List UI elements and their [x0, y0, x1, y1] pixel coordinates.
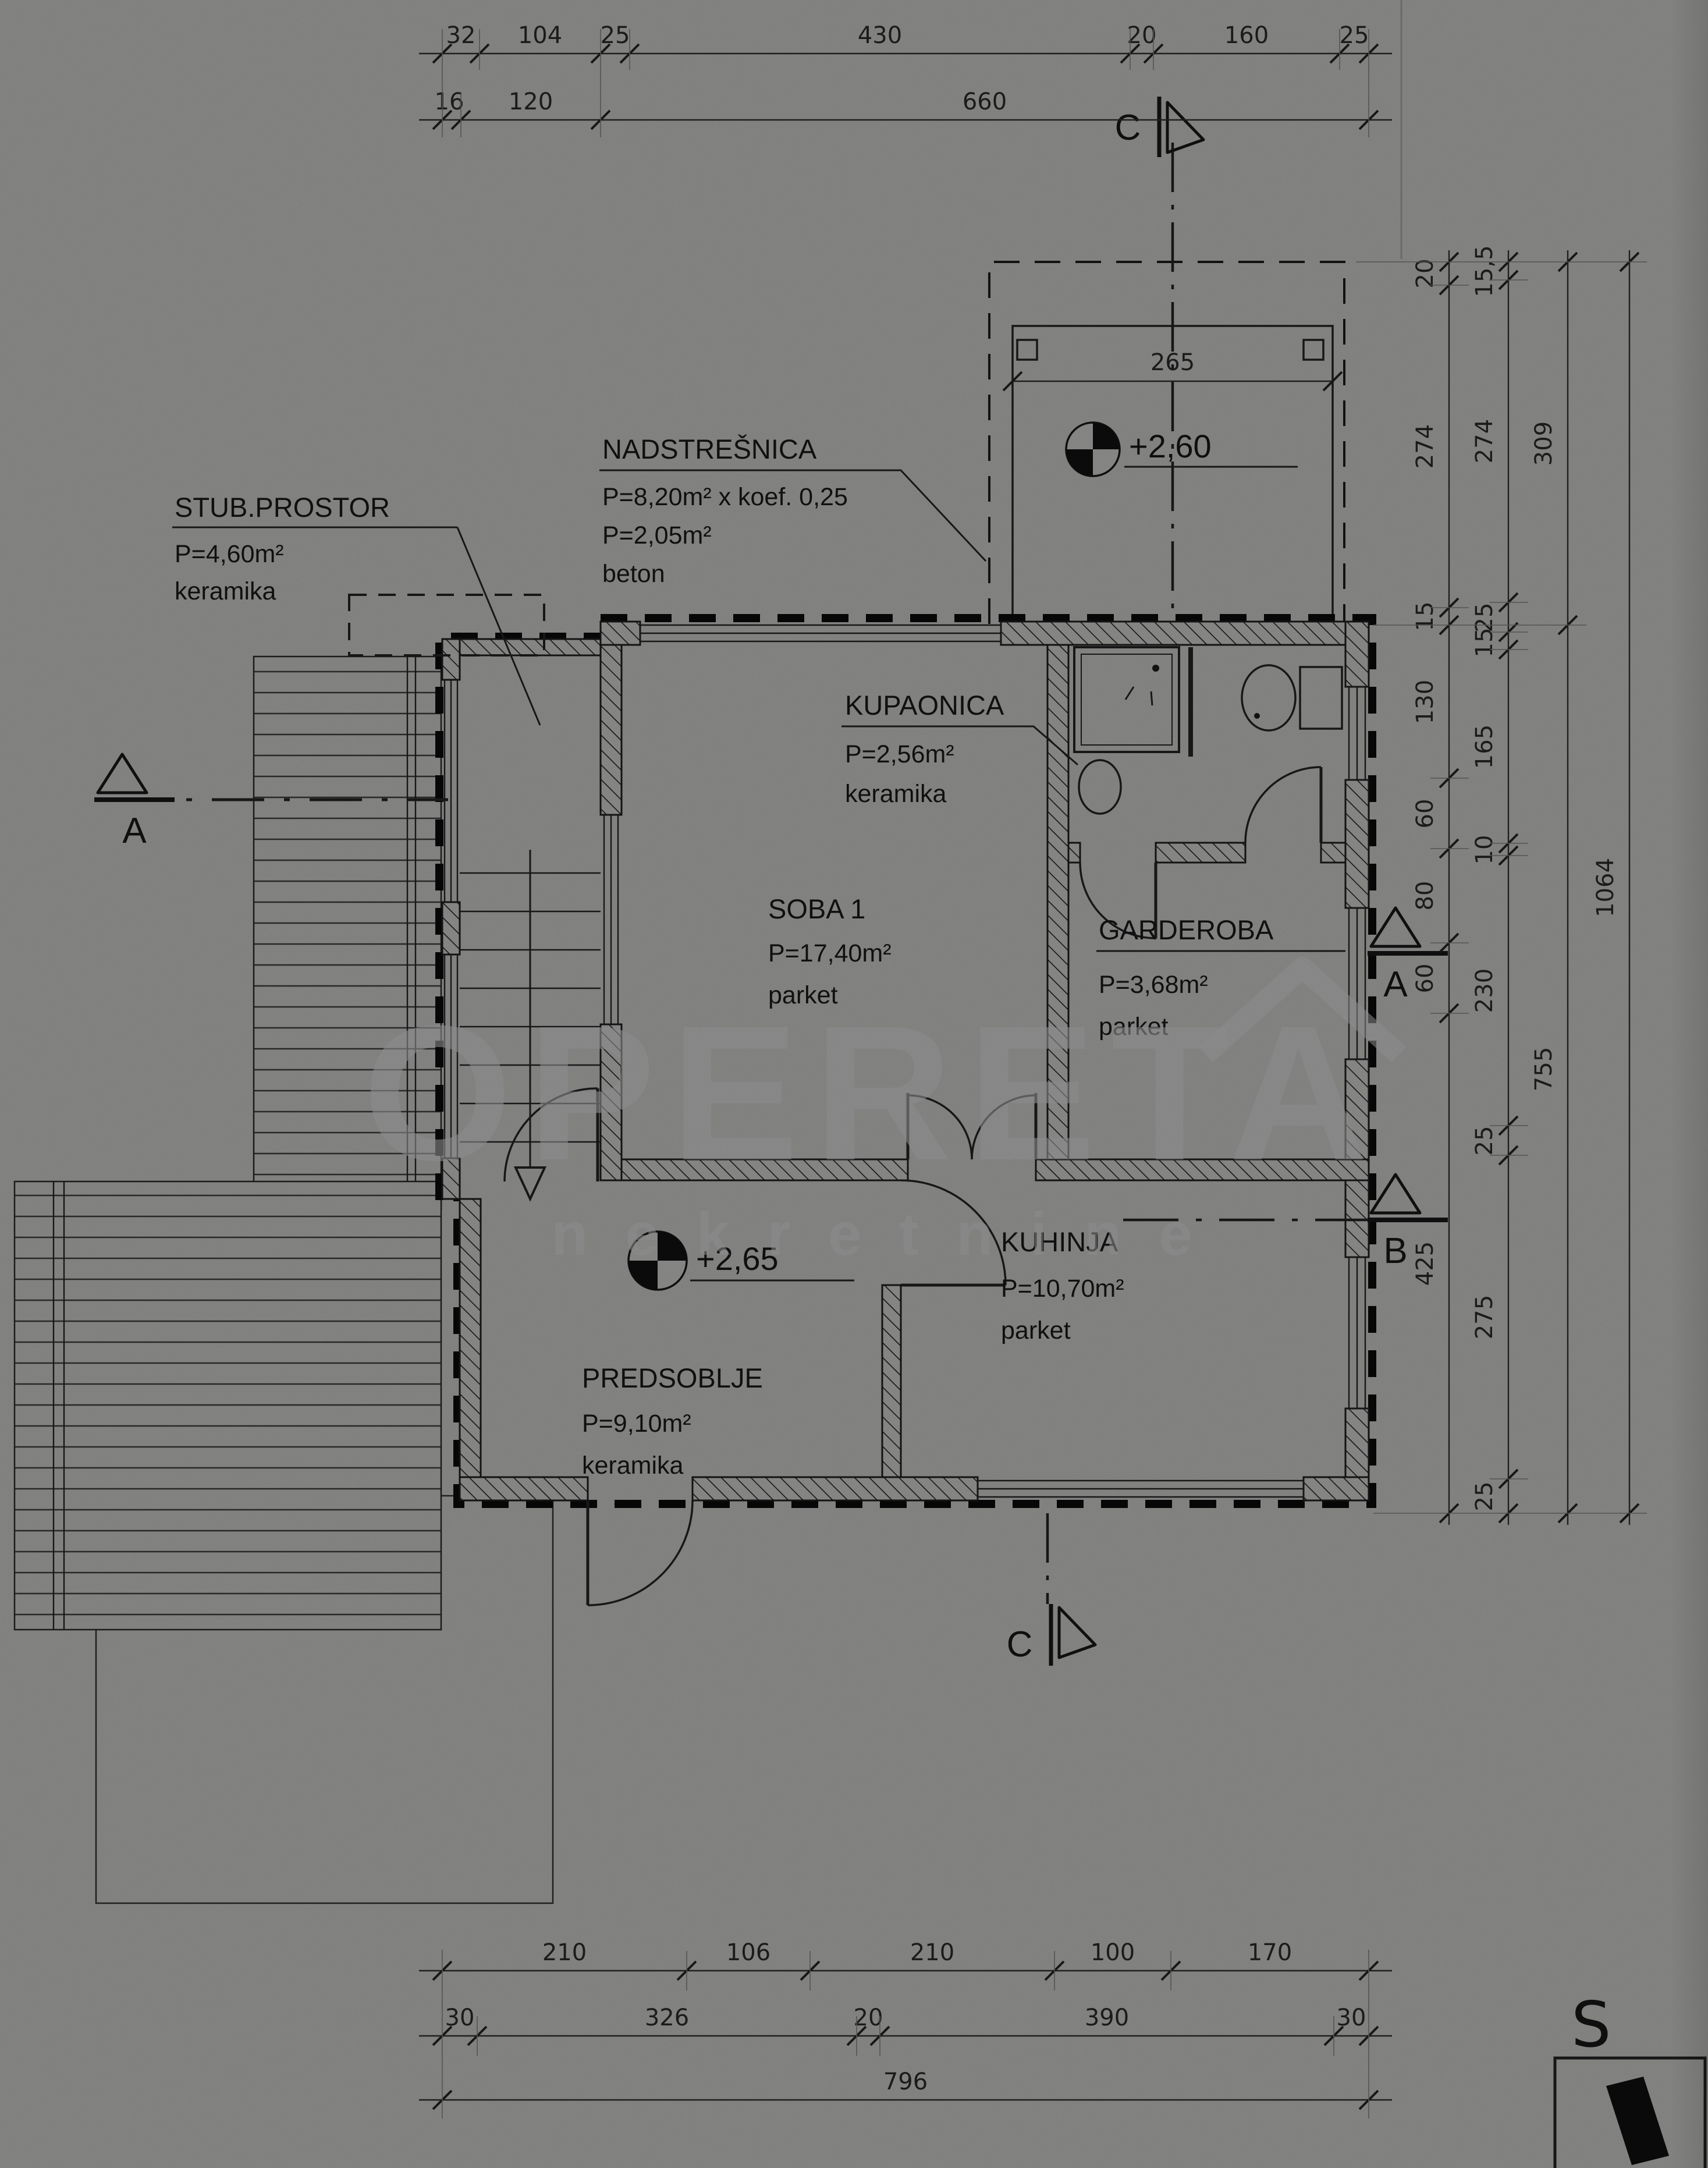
paper-texture: [0, 0, 1708, 2168]
floor-plan-sheet: 265 C C: [0, 0, 1708, 2168]
floor-plan-drawing: 265 C C: [0, 0, 1708, 2168]
page-edge-shadow: [1670, 0, 1708, 2168]
